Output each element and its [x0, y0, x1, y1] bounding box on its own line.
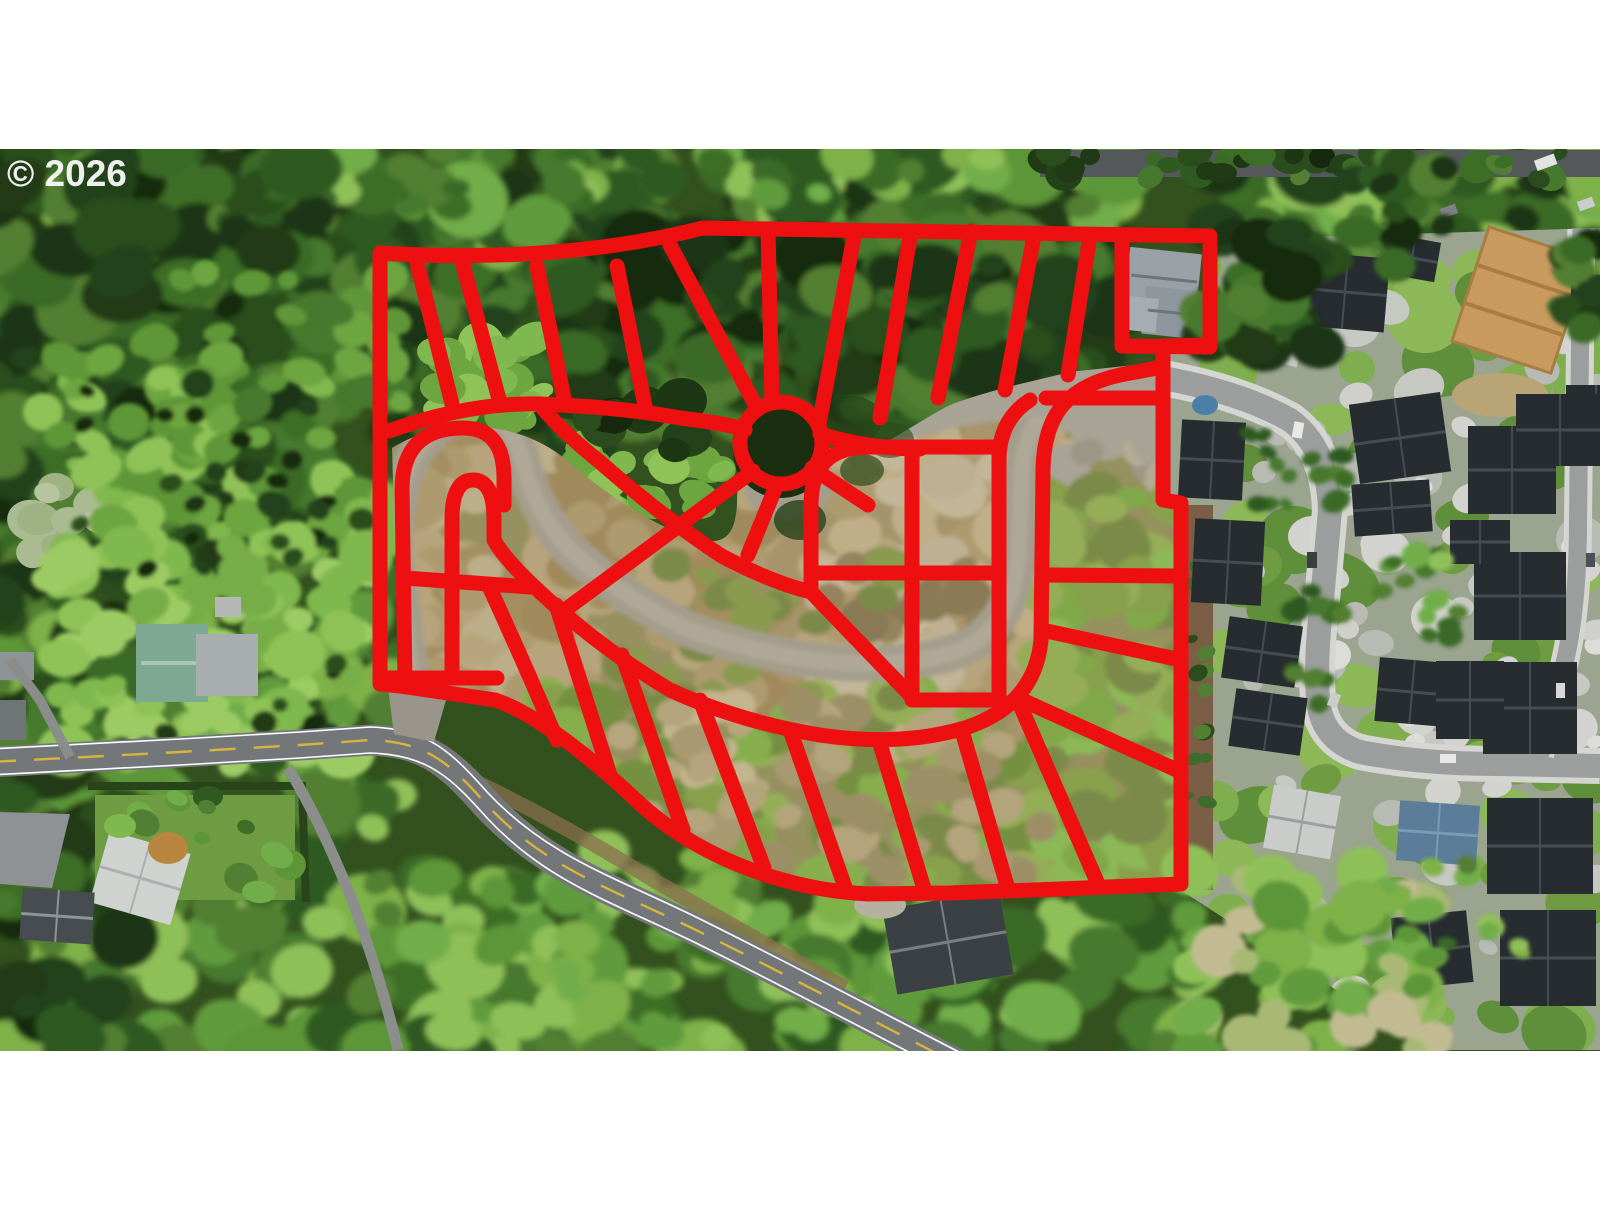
svg-text:© 2026: © 2026	[7, 153, 127, 194]
